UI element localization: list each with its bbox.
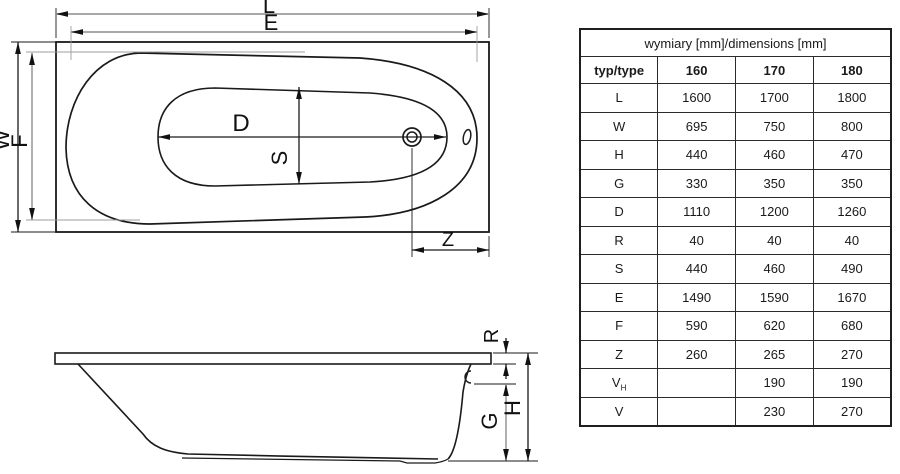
side-right-wall [448,364,471,459]
cell-value: 440 [658,141,736,170]
cell-value [658,397,736,426]
dim-label-E: E [264,10,279,35]
cell-value: 1800 [813,84,891,113]
cell-value: 695 [658,112,736,141]
cell-value: 350 [813,169,891,198]
dim-label-Z: Z [442,229,454,251]
cell-value: 460 [736,141,814,170]
dim-Z: Z [412,148,489,257]
cell-value [658,369,736,398]
tub-outer-rim [66,53,477,224]
cell-value: 800 [813,112,891,141]
table-title-row: wymiary [mm]/dimensions [mm] [580,29,891,57]
row-label: L [580,84,658,113]
cell-value: 680 [813,312,891,341]
cell-value: 1700 [736,84,814,113]
dim-label-F: F [7,134,32,147]
col-header-180: 180 [813,57,891,84]
cell-value: 620 [736,312,814,341]
cell-value: 1260 [813,198,891,227]
table-header-row: typ/type 160 170 180 [580,57,891,84]
dim-label-R: R [481,329,503,343]
dim-label-H: H [500,400,525,416]
row-label: VH [580,369,658,398]
table-row-F: F 590 620 680 [580,312,891,341]
page: { "colors": { "line": "#1a1a1a", "dim_gr… [0,0,900,474]
col-header-type: typ/type [580,57,658,84]
table-row-E: E 1490 1590 1670 [580,283,891,312]
cell-value: 440 [658,255,736,284]
cell-value: 1590 [736,283,814,312]
side-left-wall-bottom [78,364,438,459]
cell-value: 1670 [813,283,891,312]
cell-value: 470 [813,141,891,170]
cell-value: 40 [736,226,814,255]
cell-value: 490 [813,255,891,284]
cell-value: 1200 [736,198,814,227]
table-row-Z: Z 260 265 270 [580,340,891,369]
cell-value: 460 [736,255,814,284]
overflow-hole-icon [462,129,472,145]
row-label: D [580,198,658,227]
side-rim-bar [55,353,491,364]
table-row-S: S 440 460 490 [580,255,891,284]
row-label: W [580,112,658,141]
cell-value: 190 [813,369,891,398]
table-row-L: L 1600 1700 1800 [580,84,891,113]
table-row-VH: VH 190 190 [580,369,891,398]
dim-label-S: S [267,151,292,166]
cell-value: 260 [658,340,736,369]
dim-S: S [267,87,299,184]
dim-label-G: G [477,412,502,429]
cell-value: 230 [736,397,814,426]
cell-value: 350 [736,169,814,198]
row-label: F [580,312,658,341]
table-row-G: G 330 350 350 [580,169,891,198]
table-row-H: H 440 460 470 [580,141,891,170]
dimensions-table: wymiary [mm]/dimensions [mm] typ/type 16… [579,28,892,413]
cell-value: 1110 [658,198,736,227]
table-title: wymiary [mm]/dimensions [mm] [580,29,891,57]
table-row-R: R 40 40 40 [580,226,891,255]
row-label: H [580,141,658,170]
dim-label-D: D [232,110,249,137]
dim-D: D [158,110,446,137]
cell-value: 190 [736,369,814,398]
cell-value: 590 [658,312,736,341]
col-header-170: 170 [736,57,814,84]
row-label: V [580,397,658,426]
top-view: L E W F D S [0,0,489,257]
cell-value: 265 [736,340,814,369]
cell-value: 40 [813,226,891,255]
cell-value: 750 [736,112,814,141]
cell-value: 1600 [658,84,736,113]
row-label: E [580,283,658,312]
cell-value: 270 [813,397,891,426]
cell-value: 270 [813,340,891,369]
cell-value: 1490 [658,283,736,312]
table-row-D: D 1110 1200 1260 [580,198,891,227]
bathtub-technical-drawing: L E W F D S [0,0,565,474]
dim-F: F [7,52,305,220]
row-label: Z [580,340,658,369]
side-view: R G H [55,329,538,463]
col-header-160: 160 [658,57,736,84]
cell-value: 40 [658,226,736,255]
dim-G: G [474,384,516,461]
table-row-W: W 695 750 800 [580,112,891,141]
table-row-V: V 230 270 [580,397,891,426]
row-label: R [580,226,658,255]
row-label: G [580,169,658,198]
row-label: S [580,255,658,284]
cell-value: 330 [658,169,736,198]
